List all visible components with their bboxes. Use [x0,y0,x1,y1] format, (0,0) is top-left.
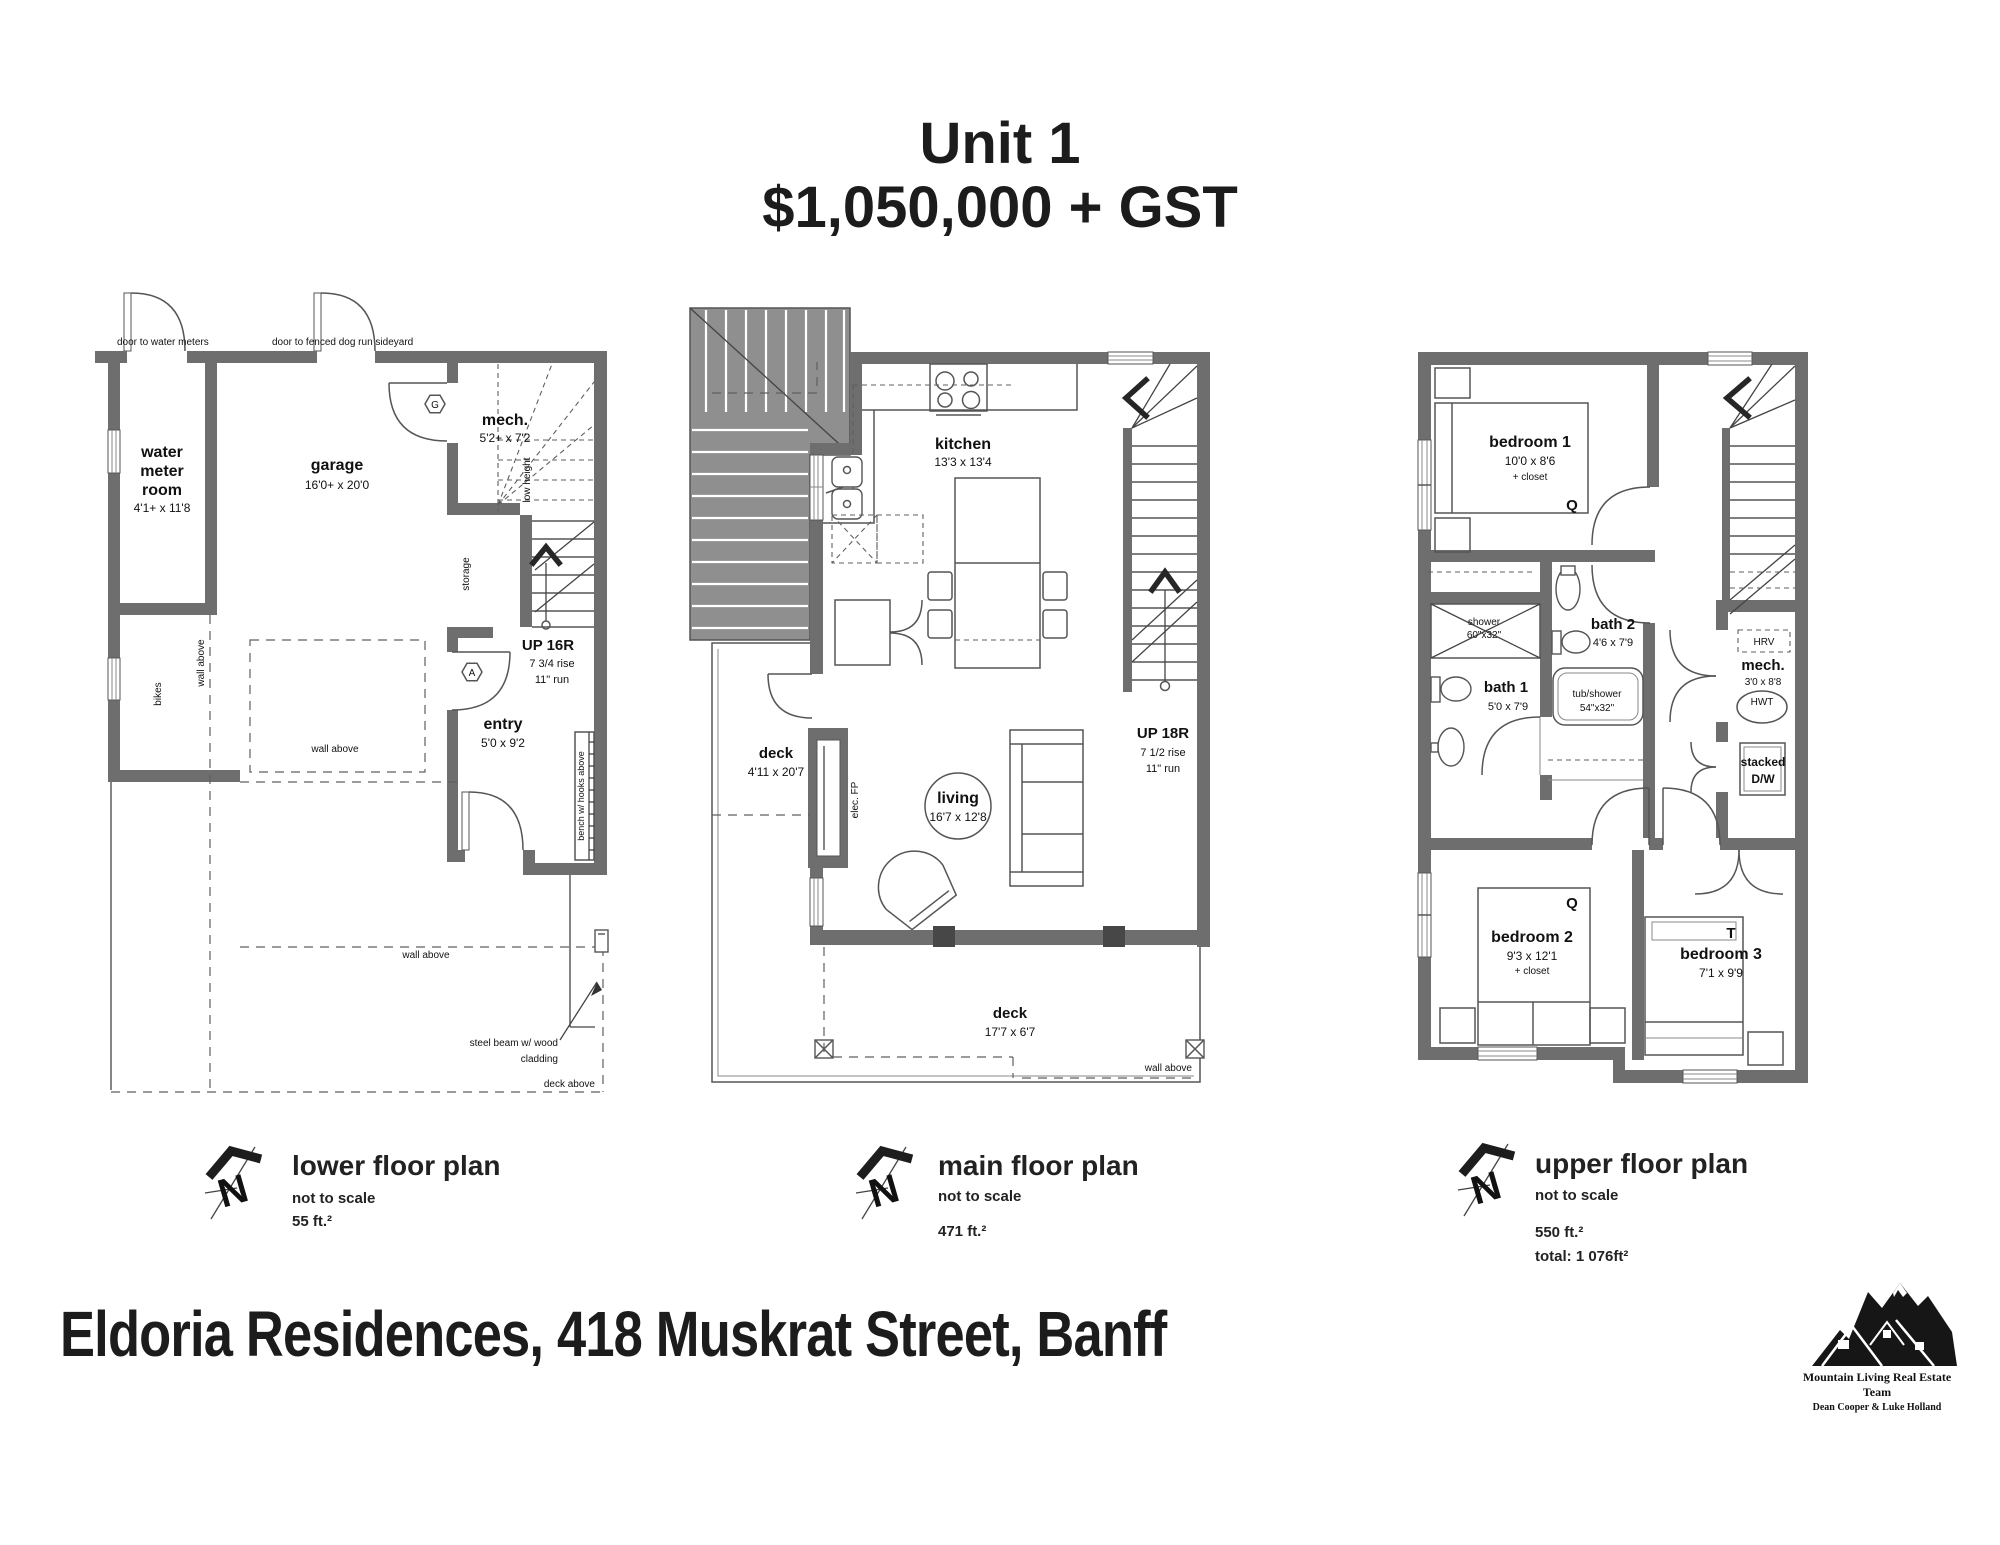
upper-stairs-arrow-icon [1727,380,1748,416]
note-door-dogrun: door to fenced dog run sideyard [272,337,413,348]
svg-text:7 3/4 rise: 7 3/4 rise [529,658,574,670]
room-bedroom2: bedroom 2 [1491,929,1573,946]
room-bedroom3: bedroom 3 [1680,946,1762,963]
deck-side-dims: 4'11 x 20'7 [748,765,805,779]
pantry-closet [835,600,922,665]
armchair [864,837,963,935]
north-compass-icon [1458,1144,1514,1216]
legend-main-area: 471 ft.² [938,1223,1139,1240]
upper-floor-plan: bedroom 1 10'0 x 8'6 + closet Q shower 6… [1418,352,1808,1083]
bedroom2-dims: 9'3 x 12'1 [1507,949,1558,963]
title-unit: Unit 1 [0,112,2000,176]
room-deck-side: deck [759,745,794,762]
note-elec-fp: elec. FP [850,781,861,818]
exterior-stairs [690,308,850,640]
lower-walls [95,351,607,875]
note-wall-above-main: wall above [1144,1063,1193,1074]
bedroom1-bed-q: Q [1566,497,1578,514]
room-water-meter: water [140,444,183,461]
logo-text: Mountain Living Real Estate Team Dean Co… [1791,1370,1963,1413]
note-bikes: bikes [153,682,164,705]
legend-lower-area: 55 ft.² [292,1213,500,1230]
note-wall-above-bottom: wall above [401,950,450,961]
svg-text:11" run: 11" run [535,674,569,686]
living-dims: 16'7 x 12'8 [929,810,987,824]
legend-main: main floor plan not to scale 471 ft.² [938,1150,1139,1240]
lower-stairs [532,521,594,629]
room-living: living [937,790,979,807]
bedroom1-closet: + closet [1513,472,1548,483]
dining-set [928,478,1067,668]
garage-dims: 16'0+ x 20'0 [305,478,370,492]
water-meter-dims: 4'1+ x 11'8 [134,501,191,515]
room-bath2: bath 2 [1591,616,1635,633]
sofa [1010,730,1083,886]
room-bedroom1: bedroom 1 [1489,434,1571,451]
room-garage: garage [311,457,364,474]
bedroom2-bed-q: Q [1566,895,1578,912]
svg-text:54"x32": 54"x32" [1580,703,1615,714]
stairs-up-arrow-icon [1152,572,1178,590]
legend-lower-name: lower floor plan [292,1150,500,1182]
stairs-up18r: UP 18R [1137,725,1189,742]
upper-walls [1418,352,1808,1083]
legend-main-scale: not to scale [938,1188,1139,1205]
note-low-height: low height [522,457,533,502]
main-stairs [1126,364,1197,691]
svg-text:room: room [142,482,182,499]
entry-doors [452,652,523,850]
legend-upper-scale: not to scale [1535,1187,1748,1204]
legend-upper-name: upper floor plan [1535,1148,1748,1180]
bedroom2-closet: + closet [1515,966,1550,977]
note-steel-beam: steel beam w/ wood [470,1038,558,1049]
stairs-up16r: UP 16R [522,637,574,654]
svg-text:7 1/2 rise: 7 1/2 rise [1140,747,1185,759]
legend-upper: upper floor plan not to scale 550 ft.² t… [1535,1148,1748,1265]
bedroom1-dims: 10'0 x 8'6 [1505,454,1556,468]
logo-agent-names: Dean Cooper & Luke Holland [1791,1402,1963,1413]
bedroom3-bed-t: T [1726,925,1735,942]
upper-stairs [1727,364,1795,614]
room-entry: entry [483,716,522,733]
deck-bottom-dims: 17'7 x 6'7 [985,1025,1036,1039]
logo-mountain-icon [1812,1283,1957,1366]
floorplan-sheet: N [0,0,2000,1545]
shower-label: shower [1468,617,1501,628]
room-bath1: bath 1 [1484,679,1528,696]
legend-lower: lower floor plan not to scale 55 ft.² [292,1150,500,1230]
hrv-label: HRV [1754,637,1775,648]
north-compass-icon [205,1147,261,1219]
bedroom3-dims: 7'1 x 9'9 [1699,966,1743,980]
tag-a: A [469,668,476,679]
svg-text:11" run: 11" run [1146,763,1180,775]
legend-upper-area: 550 ft.² [1535,1224,1748,1241]
mech-dims: 5'2+ x 7'2 [480,431,531,445]
stairs-down-arrow-icon [1126,380,1146,416]
laundry-label: stacked [1741,755,1786,769]
room-mech-upper: mech. [1741,657,1784,674]
title-price: $1,050,000 + GST [0,176,2000,240]
hwt-label: HWT [1751,697,1774,708]
tag-g: G [431,400,439,411]
room-storage: storage [461,557,472,591]
note-door-water: door to water meters [117,337,209,348]
bath2-dims: 4'6 x 7'9 [1593,637,1633,649]
room-deck-bottom: deck [993,1005,1028,1022]
tub-label: tub/shower [1573,689,1623,700]
legend-lower-scale: not to scale [292,1190,500,1207]
legend-upper-total: total: 1 076ft² [1535,1248,1748,1265]
note-bench: bench w/ hooks above [576,751,586,841]
address-title: Eldoria Residences, 418 Muskrat Street, … [60,1297,1166,1371]
svg-text:cladding: cladding [521,1054,558,1065]
svg-text:meter: meter [140,463,184,480]
north-compass-icon [856,1147,912,1219]
fireplace [808,728,848,868]
svg-text:D/W: D/W [1751,772,1775,786]
note-wall-above-mid: wall above [310,744,359,755]
room-kitchen: kitchen [935,436,991,453]
page-title: Unit 1 $1,050,000 + GST [0,112,2000,240]
logo-team-name: Mountain Living Real Estate Team [1791,1370,1963,1400]
note-deck-above: deck above [544,1079,596,1090]
deck-door [768,674,812,718]
kitchen-dims: 13'3 x 13'4 [934,455,992,469]
bath1-dims: 5'0 x 7'9 [1488,701,1528,713]
lower-floor-plan: door to water meters door to fenced dog … [95,293,608,1092]
room-mech: mech. [482,412,528,429]
entry-dims: 5'0 x 9'2 [481,736,525,750]
deck-outline [712,643,1204,1082]
legend-main-name: main floor plan [938,1150,1139,1182]
mech-laundry [1737,630,1790,795]
mech-upper-dims: 3'0 x 8'8 [1745,677,1782,688]
svg-text:60"x32": 60"x32" [1467,630,1502,641]
main-floor-plan: kitchen 13'3 x 13'4 living 16'7 x 12'8 d… [690,308,1210,1082]
note-wall-above-left: wall above [196,639,207,688]
